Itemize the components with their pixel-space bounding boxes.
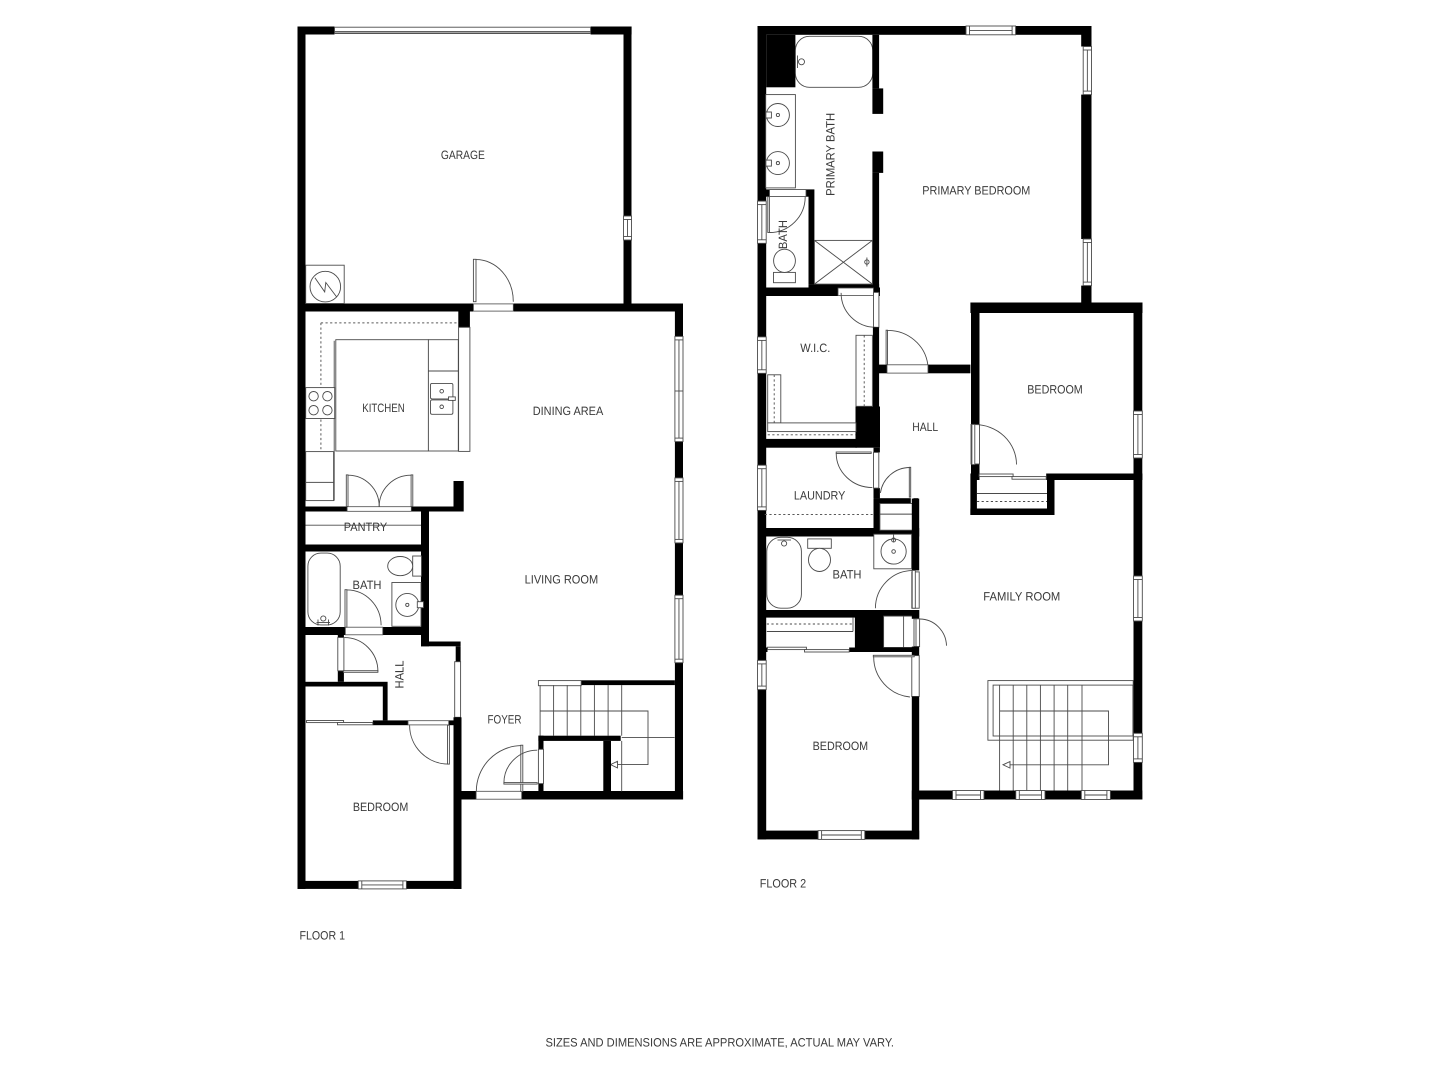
svg-text:BATH: BATH [833,568,862,582]
svg-text:BATH: BATH [353,578,382,592]
svg-text:GARAGE: GARAGE [441,148,485,162]
svg-text:DINING AREA: DINING AREA [533,404,604,418]
svg-text:BATH: BATH [776,220,790,249]
svg-text:LIVING ROOM: LIVING ROOM [525,573,599,587]
svg-text:FAMILY ROOM: FAMILY ROOM [983,590,1060,604]
svg-text:FOYER: FOYER [488,713,522,727]
svg-text:W.I.C.: W.I.C. [800,341,830,355]
svg-text:BEDROOM: BEDROOM [1027,382,1083,396]
svg-text:PANTRY: PANTRY [344,520,388,534]
svg-text:FLOOR 2: FLOOR 2 [760,877,807,891]
svg-text:FLOOR 1: FLOOR 1 [300,929,346,943]
svg-text:HALL: HALL [393,660,407,688]
svg-text:PRIMARY BEDROOM: PRIMARY BEDROOM [922,184,1030,198]
svg-text:BEDROOM: BEDROOM [813,739,869,753]
svg-text:KITCHEN: KITCHEN [362,401,405,415]
svg-text:SIZES AND DIMENSIONS ARE APPRO: SIZES AND DIMENSIONS ARE APPROXIMATE, AC… [545,1036,894,1050]
svg-text:BEDROOM: BEDROOM [353,800,409,814]
svg-text:PRIMARY BATH: PRIMARY BATH [824,113,838,196]
svg-text:LAUNDRY: LAUNDRY [794,489,846,503]
svg-text:HALL: HALL [912,420,938,434]
